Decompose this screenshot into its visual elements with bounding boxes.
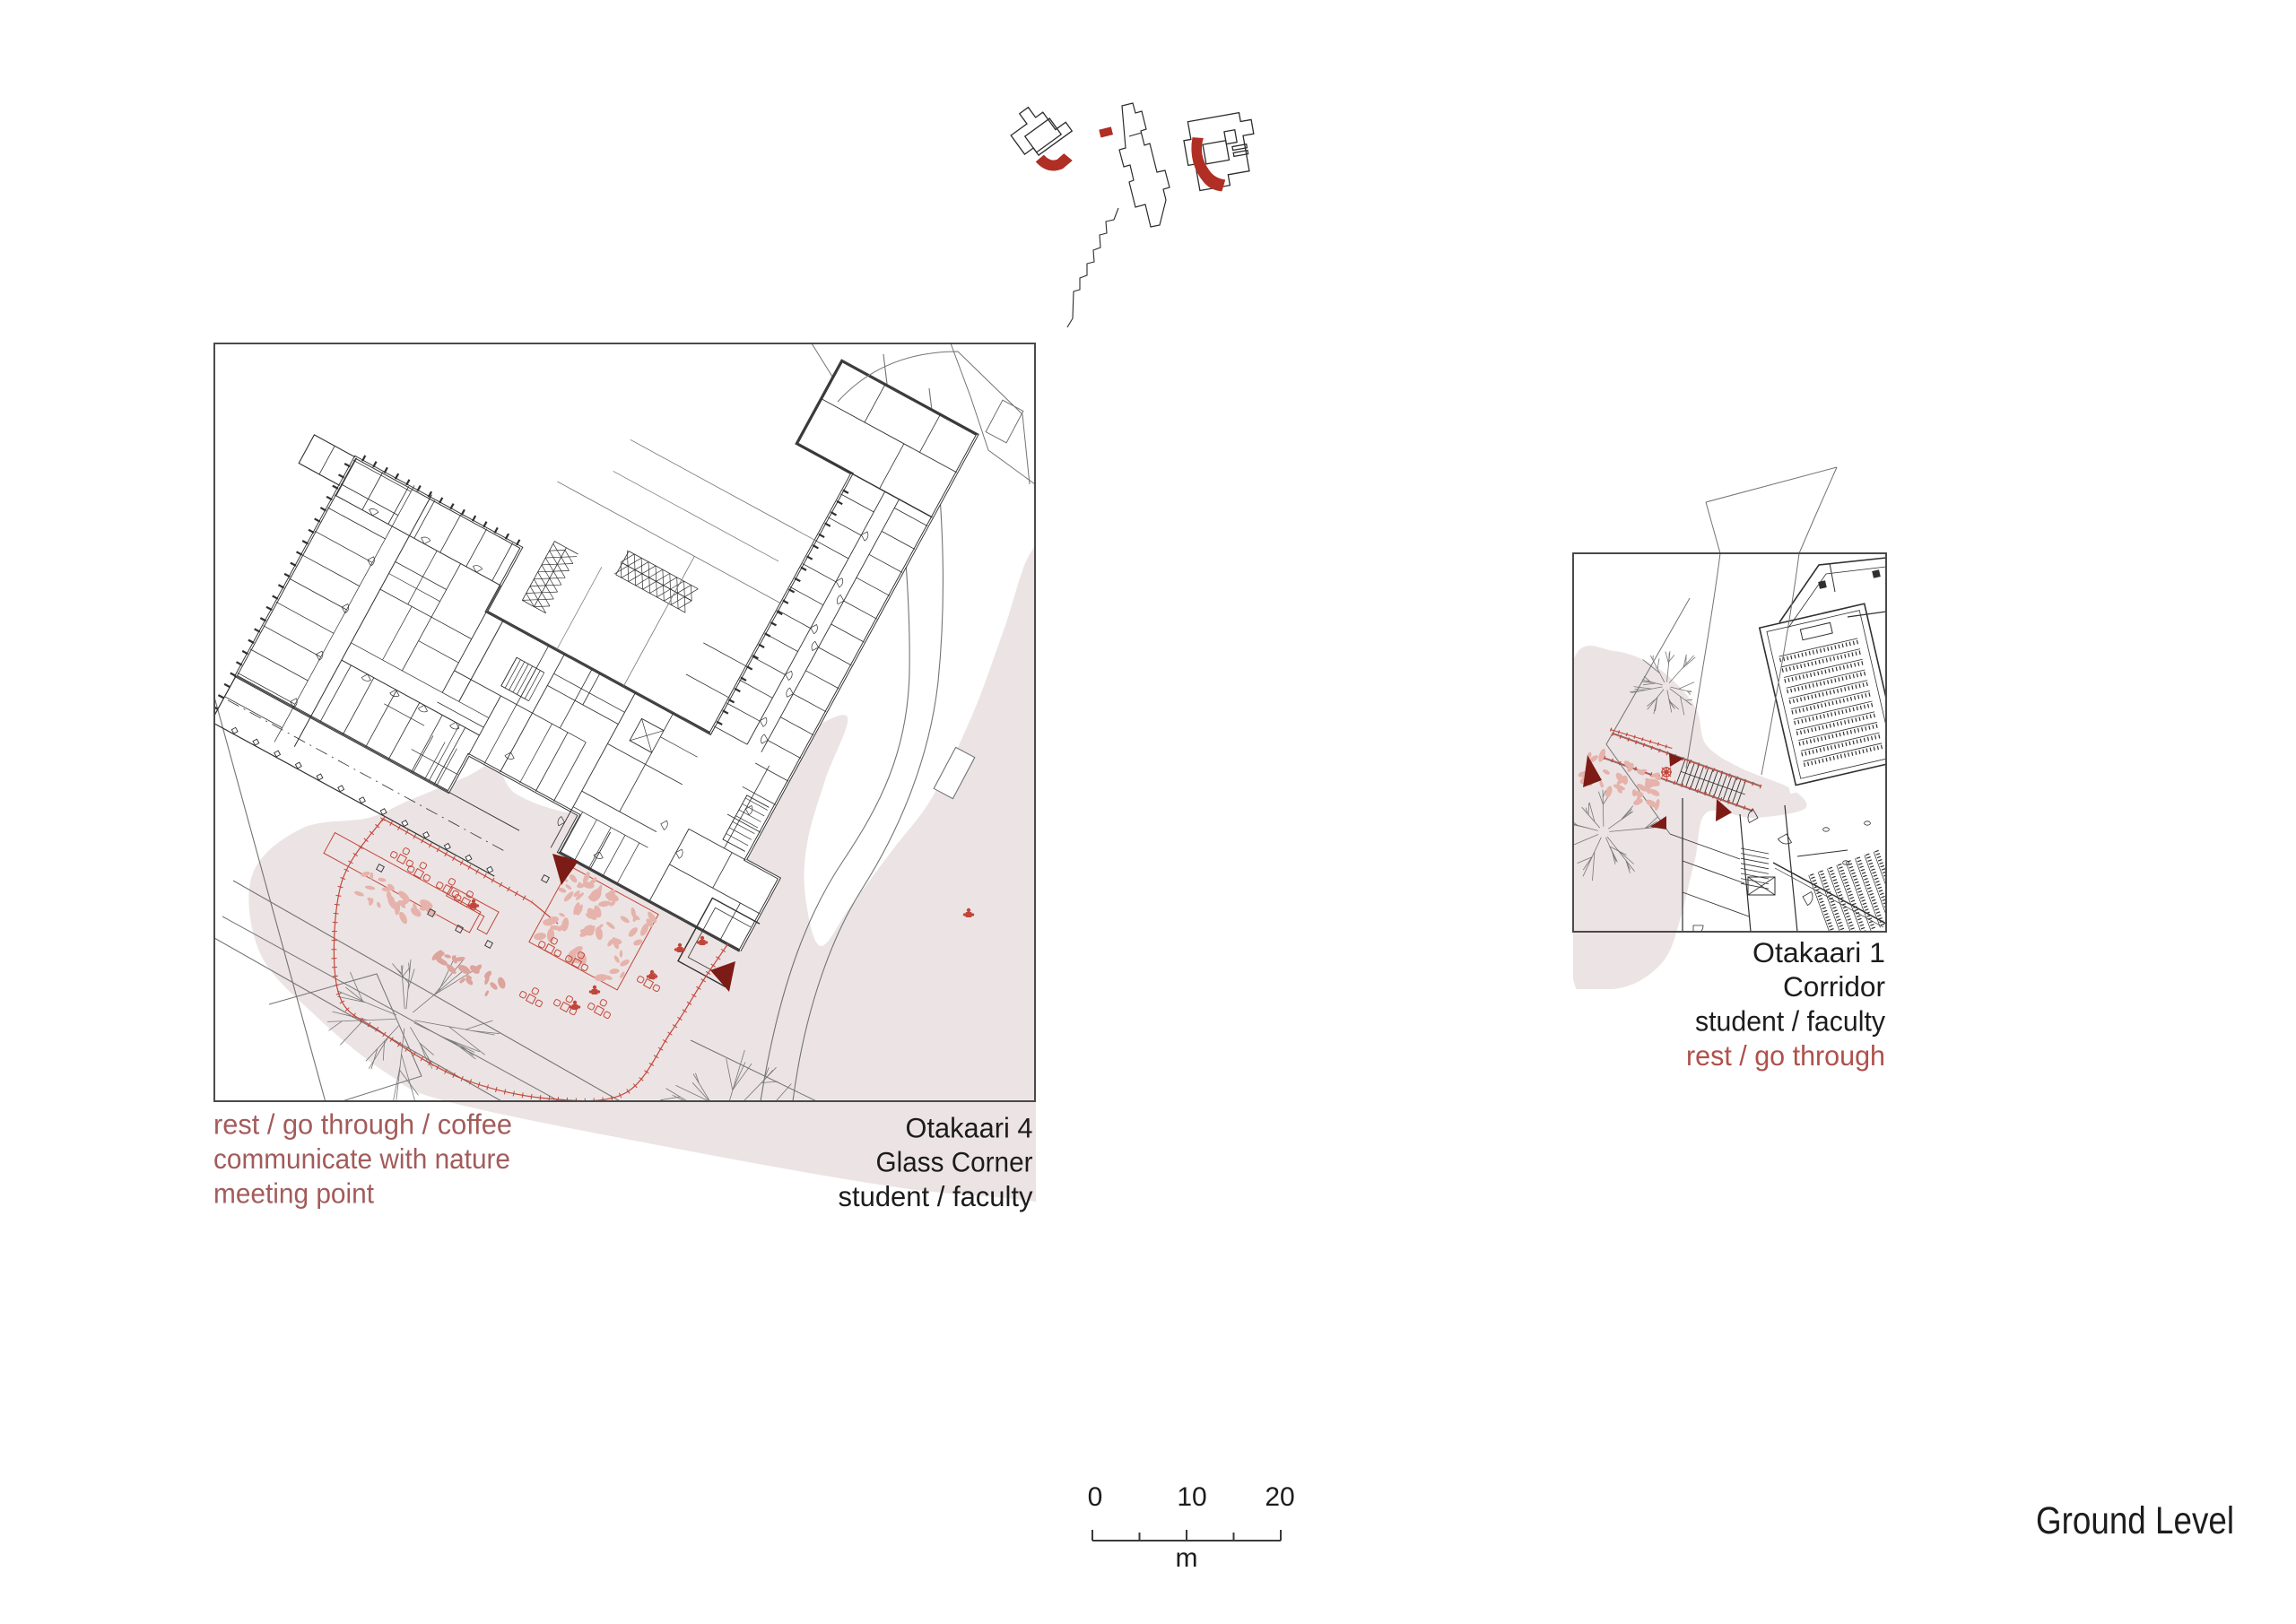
svg-text:10: 10	[1177, 1482, 1206, 1512]
svg-text:Otakaari 1: Otakaari 1	[1752, 936, 1885, 968]
svg-text:m: m	[1176, 1543, 1198, 1573]
svg-text:Otakaari 4: Otakaari 4	[906, 1112, 1033, 1144]
svg-text:Ground Level: Ground Level	[2036, 1499, 2234, 1542]
svg-text:rest / go through: rest / go through	[1686, 1039, 1885, 1072]
svg-text:student / faculty: student / faculty	[839, 1180, 1033, 1212]
svg-text:student / faculty: student / faculty	[1695, 1005, 1885, 1038]
svg-text:meeting point: meeting point	[213, 1177, 374, 1210]
svg-text:communicate with nature: communicate with nature	[213, 1142, 510, 1175]
svg-text:rest / go through / coffee: rest / go through / coffee	[213, 1108, 512, 1141]
svg-text:Corridor: Corridor	[1783, 970, 1885, 1003]
svg-text:20: 20	[1265, 1482, 1294, 1512]
svg-text:0: 0	[1088, 1482, 1103, 1512]
svg-text:Glass Corner: Glass Corner	[876, 1146, 1033, 1178]
